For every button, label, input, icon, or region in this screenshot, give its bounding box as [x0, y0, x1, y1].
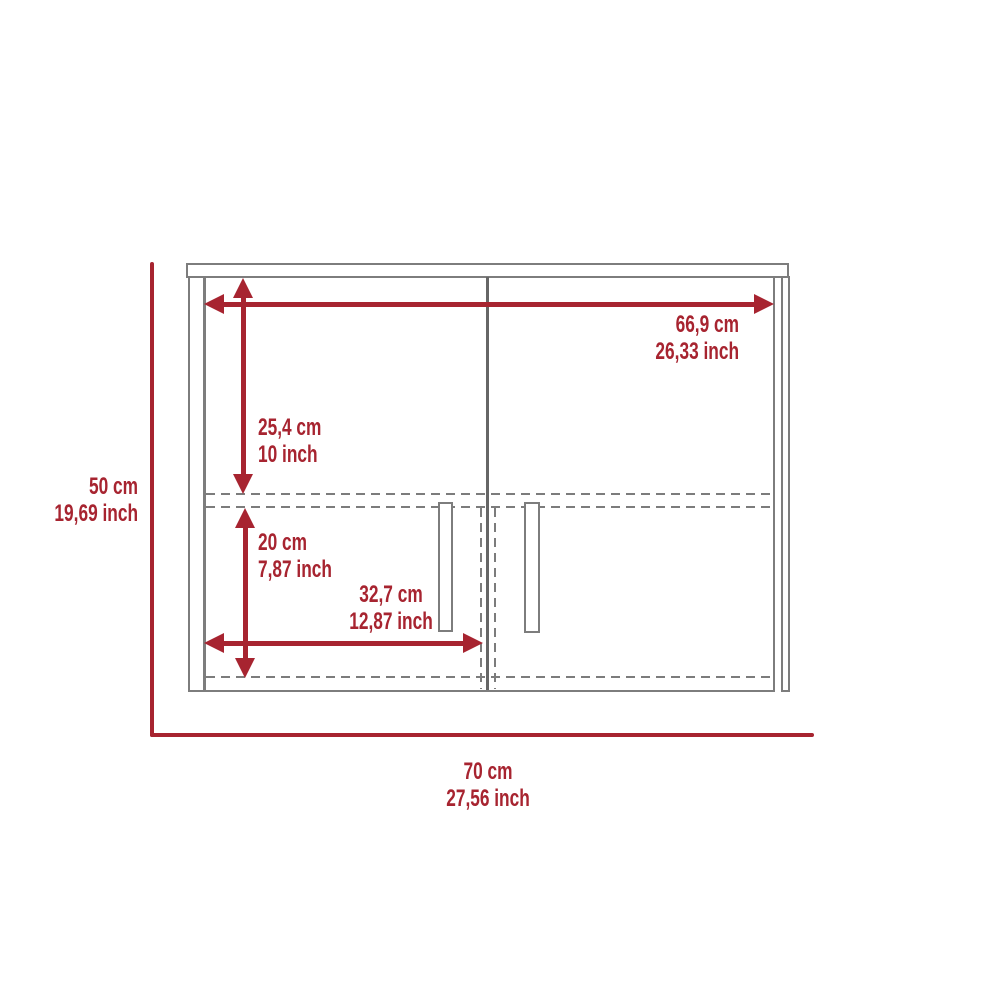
door-width-dimension-arrow — [204, 633, 483, 653]
cabinet-left-side-panel — [188, 276, 205, 692]
dimension-inch: 10 inch — [258, 441, 402, 468]
arrow-stem — [217, 641, 470, 646]
door-gap-divider — [486, 277, 489, 690]
overall-height-reference-line — [150, 262, 154, 737]
right-door-handle — [524, 502, 540, 633]
cabinet-right-side-panel — [781, 276, 790, 692]
arrowhead-right-icon — [754, 294, 774, 314]
arrowhead-right-icon — [463, 633, 483, 653]
arrowhead-down-icon — [233, 474, 253, 494]
dimension-cm: 50 cm — [0, 473, 138, 500]
arrow-stem — [241, 291, 246, 481]
overall-width-label: 70 cm 27,56 inch — [416, 758, 560, 812]
dimension-inch: 7,87 inch — [258, 556, 402, 583]
shelf-dashed-line-lower — [206, 506, 773, 508]
center-dashed-line-left — [480, 508, 482, 689]
overall-width-reference-line — [150, 733, 814, 737]
dimension-cm: 70 cm — [416, 758, 560, 785]
top-width-label: 66,9 cm 26,33 inch — [595, 311, 739, 365]
dimension-cm: 20 cm — [258, 529, 402, 556]
overall-height-label: 50 cm 19,69 inch — [0, 473, 138, 527]
dimension-inch: 26,33 inch — [595, 338, 739, 365]
dimension-cm: 66,9 cm — [595, 311, 739, 338]
cabinet-dimension-diagram: 66,9 cm 26,33 inch 25,4 cm 10 inch 20 cm… — [0, 0, 1000, 1000]
dimension-inch: 27,56 inch — [416, 785, 560, 812]
door-width-label: 32,7 cm 12,87 inch — [319, 581, 463, 635]
arrow-stem — [217, 302, 761, 307]
dimension-cm: 25,4 cm — [258, 414, 402, 441]
upper-height-dimension-arrow — [233, 278, 253, 494]
dimension-inch: 12,87 inch — [319, 608, 463, 635]
arrowhead-down-icon — [235, 658, 255, 678]
lower-height-label: 20 cm 7,87 inch — [258, 529, 402, 583]
dimension-cm: 32,7 cm — [319, 581, 463, 608]
upper-height-label: 25,4 cm 10 inch — [258, 414, 402, 468]
dimension-inch: 19,69 inch — [0, 500, 138, 527]
shelf-dashed-line-upper — [206, 493, 773, 495]
center-dashed-line-right — [494, 508, 496, 689]
bottom-dashed-line — [206, 676, 773, 678]
